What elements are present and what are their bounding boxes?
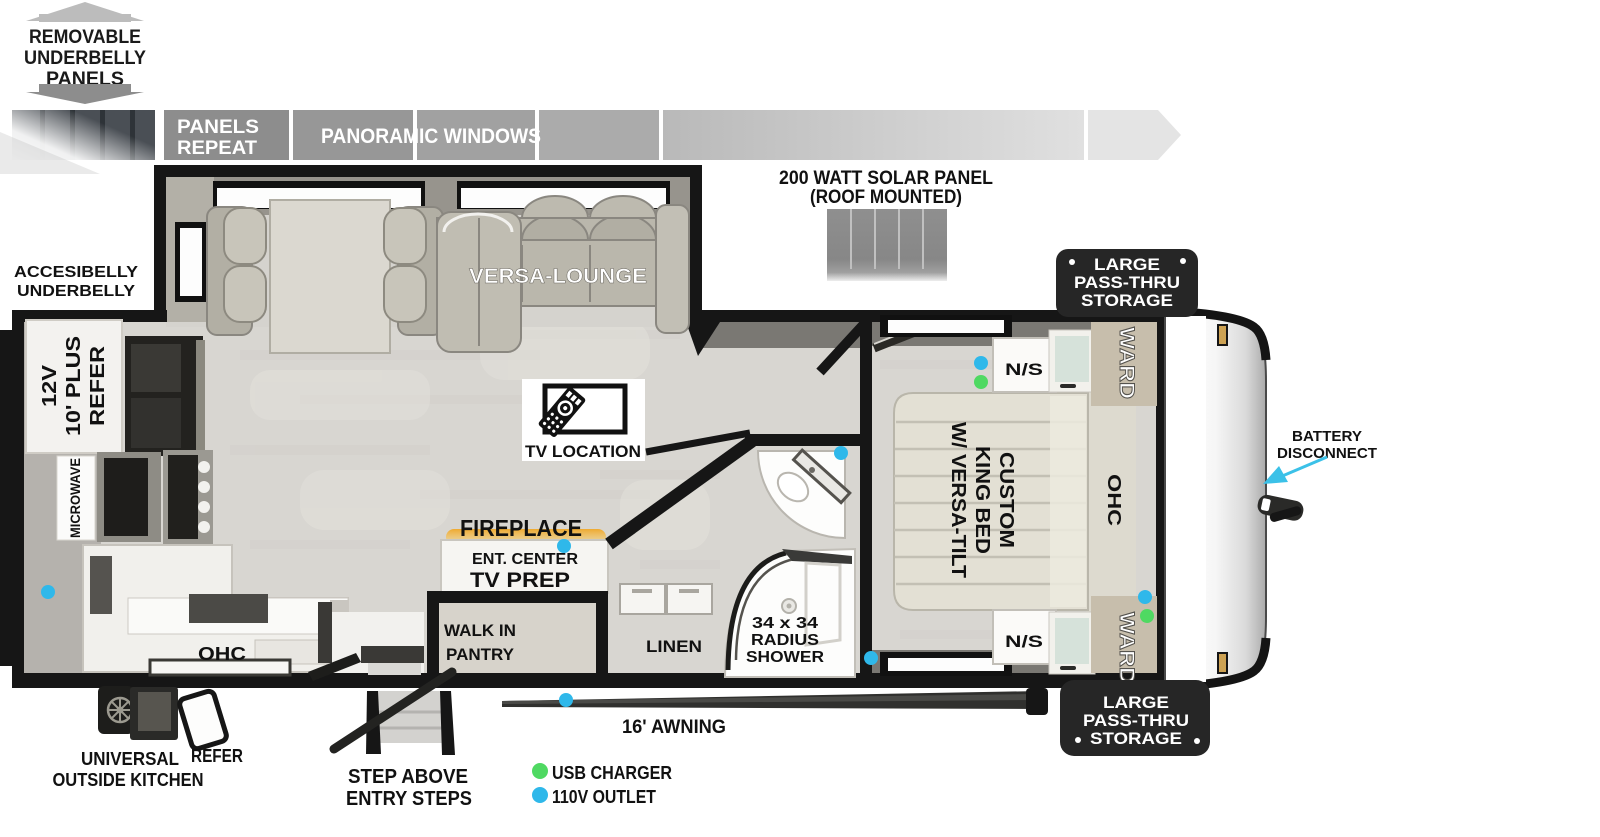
svg-text:LARGE: LARGE [1094,255,1160,274]
svg-text:USB CHARGER: USB CHARGER [552,763,672,783]
svg-text:N/S: N/S [1005,360,1043,379]
svg-text:WARD: WARD [1115,327,1138,399]
svg-text:LINEN: LINEN [646,637,702,656]
svg-text:(ROOF MOUNTED): (ROOF MOUNTED) [810,187,962,208]
svg-text:WARD: WARD [1115,612,1138,684]
svg-text:VERSA-LOUNGE: VERSA-LOUNGE [469,265,647,288]
svg-text:UNDERBELLY: UNDERBELLY [17,283,135,300]
svg-text:110V OUTLET: 110V OUTLET [552,787,656,807]
svg-text:N/S: N/S [1005,632,1043,651]
svg-text:SHOWER: SHOWER [746,649,824,666]
svg-text:STEP ABOVE: STEP ABOVE [348,766,468,788]
svg-text:ENTRY STEPS: ENTRY STEPS [346,788,472,810]
svg-text:PASS-THRU: PASS-THRU [1083,711,1189,730]
svg-text:STORAGE: STORAGE [1081,291,1173,310]
svg-text:12V: 12V [39,364,61,407]
svg-text:LARGE: LARGE [1103,693,1169,712]
svg-text:16' AWNING: 16' AWNING [622,717,726,738]
svg-text:PANORAMIC WINDOWS: PANORAMIC WINDOWS [321,125,541,148]
svg-text:FIREPLACE: FIREPLACE [460,515,582,541]
svg-text:PANTRY: PANTRY [446,645,515,664]
svg-text:REMOVABLE: REMOVABLE [29,27,141,48]
svg-text:10' PLUS: 10' PLUS [63,336,85,436]
svg-text:ACCESIBELLY: ACCESIBELLY [14,264,138,281]
svg-text:REPEAT: REPEAT [177,138,257,159]
svg-text:PANELS: PANELS [177,117,259,138]
svg-text:BATTERY: BATTERY [1292,428,1362,445]
svg-text:TV LOCATION: TV LOCATION [525,442,641,461]
svg-text:UNDERBELLY: UNDERBELLY [24,48,146,69]
svg-text:KING BED: KING BED [971,446,993,554]
svg-text:200 WATT SOLAR PANEL: 200 WATT SOLAR PANEL [779,168,993,189]
svg-text:W/ VERSA-TILT: W/ VERSA-TILT [947,422,969,578]
svg-text:OUTSIDE KITCHEN: OUTSIDE KITCHEN [53,770,204,790]
svg-text:MICROWAVE: MICROWAVE [67,458,83,538]
svg-text:PASS-THRU: PASS-THRU [1074,273,1180,292]
svg-text:OHC: OHC [198,644,246,664]
svg-text:CUSTOM: CUSTOM [995,452,1017,548]
svg-text:RADIUS: RADIUS [751,632,819,649]
svg-text:REFER: REFER [87,345,109,426]
svg-text:34 x 34: 34 x 34 [752,615,818,632]
svg-text:UNIVERSAL: UNIVERSAL [81,749,179,769]
svg-text:TV PREP: TV PREP [470,569,570,592]
svg-text:STORAGE: STORAGE [1090,729,1182,748]
svg-text:ENT. CENTER: ENT. CENTER [472,551,578,568]
svg-text:REFER: REFER [191,746,243,766]
svg-text:OHC: OHC [1104,474,1124,526]
svg-text:DISCONNECT: DISCONNECT [1277,445,1377,462]
svg-text:WALK IN: WALK IN [444,621,516,640]
